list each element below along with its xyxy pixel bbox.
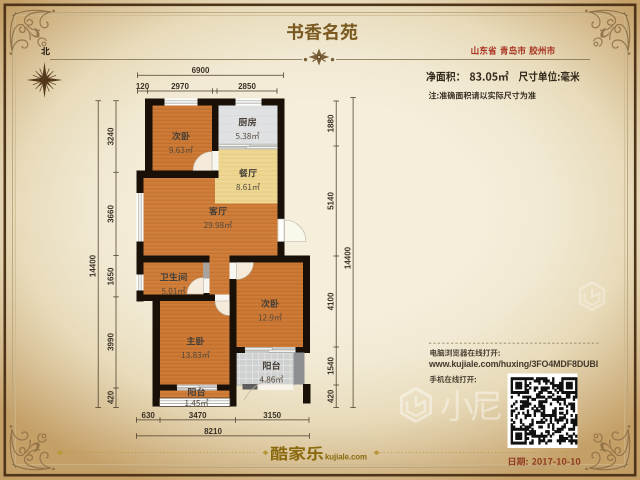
- svg-text:1540: 1540: [327, 357, 336, 375]
- svg-text:3240: 3240: [107, 127, 116, 145]
- svg-text:6900: 6900: [192, 66, 210, 75]
- svg-text:420: 420: [327, 389, 336, 403]
- svg-text:14400: 14400: [89, 254, 98, 277]
- svg-text:630: 630: [142, 411, 156, 420]
- svg-text:3470: 3470: [189, 411, 207, 420]
- svg-text:3990: 3990: [107, 333, 116, 351]
- svg-text:1650: 1650: [107, 267, 116, 285]
- svg-text:4100: 4100: [327, 292, 336, 310]
- svg-text:14400: 14400: [344, 246, 353, 269]
- svg-text:2850: 2850: [238, 82, 256, 91]
- svg-text:3150: 3150: [263, 411, 281, 420]
- svg-text:120: 120: [136, 82, 150, 91]
- svg-text:www.kujiale.com/huxing/3FO4MDF: www.kujiale.com/huxing/3FO4MDF8DUBI: [428, 359, 598, 369]
- svg-text:2970: 2970: [171, 82, 189, 91]
- svg-text:1880: 1880: [327, 114, 336, 132]
- svg-text:5140: 5140: [327, 192, 336, 210]
- svg-text:420: 420: [107, 390, 116, 404]
- svg-text:3660: 3660: [107, 205, 116, 223]
- svg-text:kujiale.com: kujiale.com: [325, 453, 367, 462]
- svg-text:8210: 8210: [204, 427, 222, 436]
